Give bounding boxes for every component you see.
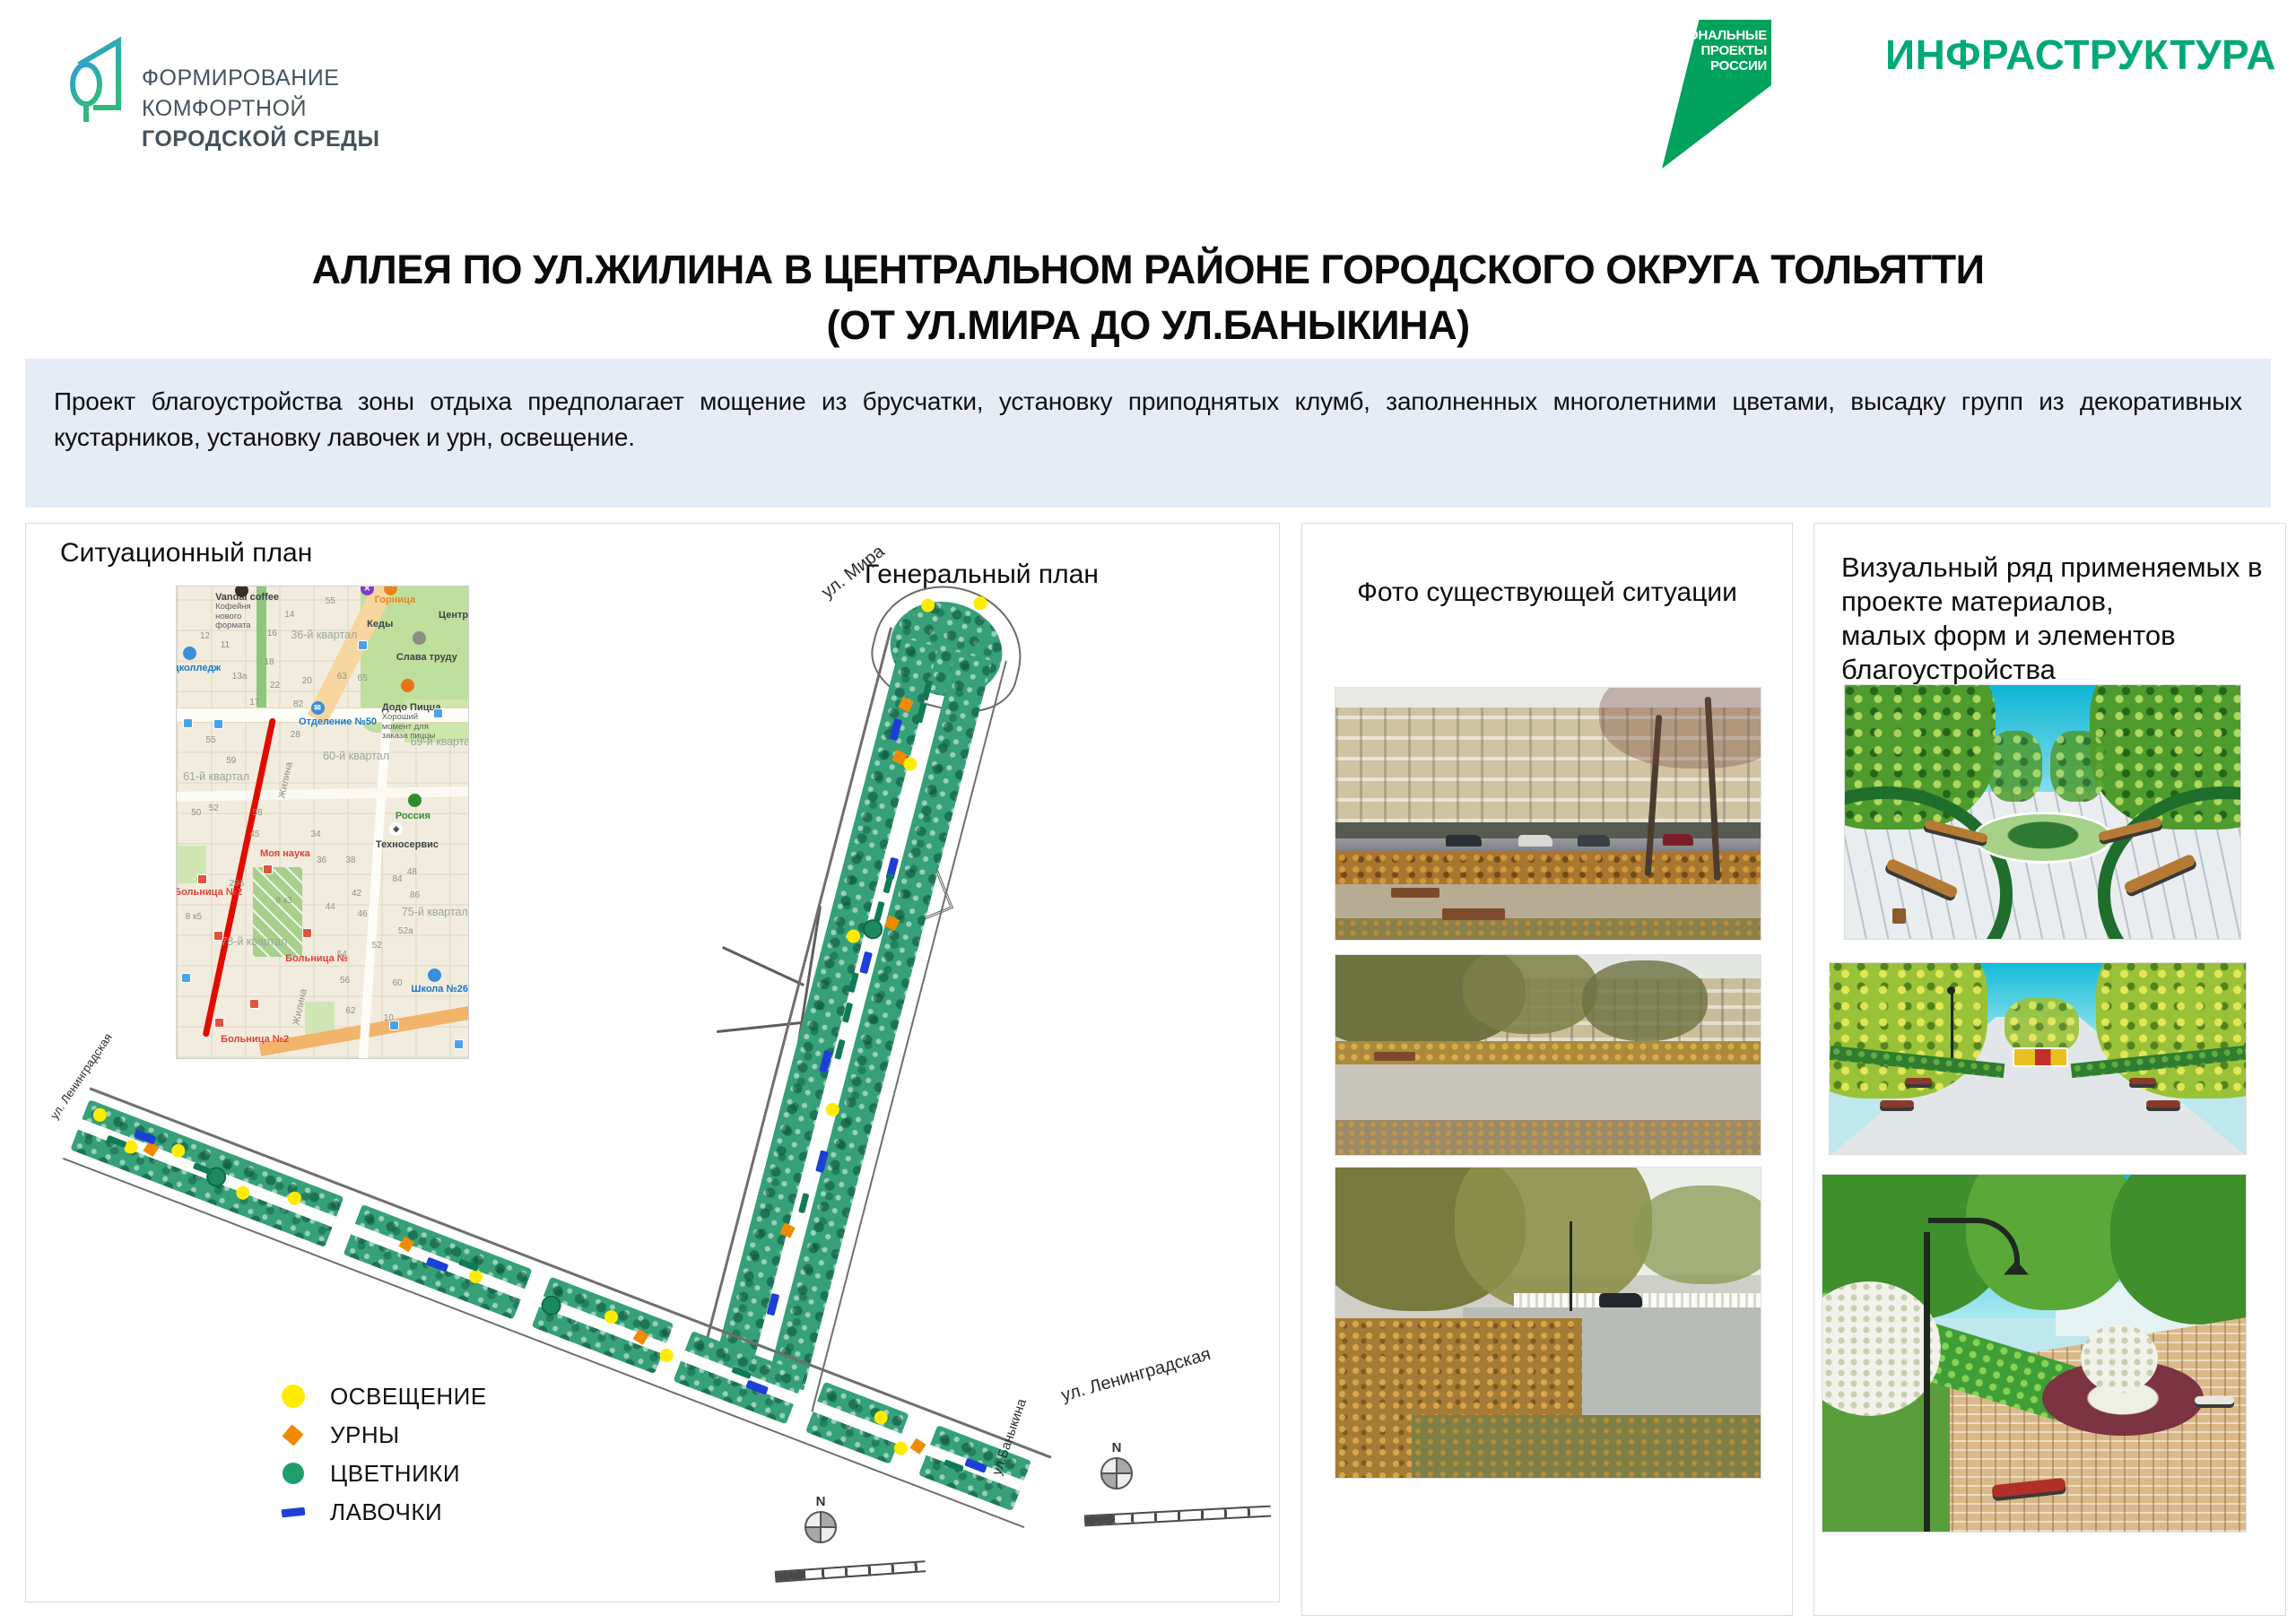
fkgs-logo: ФОРМИРОВАНИЕ КОМФОРТНОЙ ГОРОДСКОЙ СРЕДЫ [66,32,425,167]
project-render-3 [1822,1174,2247,1533]
legend-item: ОСВЕЩЕНИЕ [282,1383,487,1410]
photos-title: Фото существующей ситуации [1302,578,1792,608]
lighting-marker [761,1366,778,1382]
page-title: АЛЛЕЯ ПО УЛ.ЖИЛИНА В ЦЕНТРАЛЬНОМ РАЙОНЕ … [0,242,2296,353]
map-house-number: 55 [326,596,335,606]
map-poi-label: Централ [439,610,469,621]
bench-marker [886,857,900,880]
map-house-number: 45 [249,829,259,839]
planter-marker [916,702,926,723]
planter-marker [798,1194,809,1214]
renders-panel: Визуальный ряд применяемых в проекте мат… [1813,523,2286,1616]
render-bench [2195,1396,2234,1404]
plan-road-sketch [717,1021,802,1033]
bench-legend-icon [282,1507,306,1517]
alley-greenery [344,1204,533,1320]
render-bench [2146,1100,2180,1107]
poi-marker-icon [214,1018,224,1028]
map-poi-label: 60-й квартал [323,751,389,761]
photo-grass [1412,1415,1761,1479]
alley-greenery [673,1331,805,1424]
compass-rose-icon [1100,1457,1133,1489]
existing-situation-photo-1 [1335,687,1761,941]
car [1518,835,1552,847]
lighting-marker [170,1142,187,1159]
alley-greenery [768,652,993,1391]
dodo-pizza-icon [401,679,414,692]
planter-marker [834,1039,845,1060]
car [1663,834,1693,846]
render-flowerbed [2013,1047,2068,1067]
car [1446,835,1482,847]
fkgs-line: КОМФОРТНОЙ [142,93,379,124]
map-poi-label: 61-й квартал [183,771,249,782]
map-house-number: 16 [267,629,277,638]
map-house-number: 62 [346,1006,356,1016]
urn-marker [898,697,913,712]
map-poi-label: 69-й квартал [411,736,469,747]
photo-bench [1442,908,1505,920]
cul-de-sac-outline [861,570,1036,725]
general-plan-title: Генеральный план [865,560,1099,590]
render-urn [1892,908,1906,924]
legend-item: ЛАВОЧКИ [282,1498,487,1525]
map-house-number: 58 [253,808,263,818]
lamp-head [1947,986,1955,994]
transit-stop-icon [389,1020,399,1030]
bench-marker [859,951,873,974]
scale-bar [1084,1506,1271,1527]
photo-pavement [1335,1064,1761,1120]
photo-grass [1335,918,1761,941]
compass-rose-icon [804,1511,837,1543]
road-edge-line [63,1157,1024,1528]
street-label: ул.Баныкина [989,1397,1030,1478]
map-house-number: 38 [346,855,356,865]
car [1578,835,1610,847]
map-house-number: 52 [372,941,382,951]
photos-panel: Фото существующей ситуации [1301,523,1793,1616]
situational-map: Vandal coffeeКофейня нового форматаГорни… [176,586,469,1059]
map-poi-label: 75-й квартал [402,907,468,917]
map-poi-label: Больница №2 [221,1034,289,1045]
render-flowerbed [1973,812,2113,864]
map-house-number: 42 [352,889,361,899]
map-house-number: 55 [206,735,216,745]
map-poi-label: 36-й квартал [291,630,357,640]
map-house-number: 18 [265,657,274,667]
map-house-number: 60 [393,978,403,988]
urn-marker [143,1141,160,1157]
compass: N [1099,1440,1135,1489]
project-render-1 [1844,684,2241,940]
urn-legend-icon [283,1424,304,1446]
plan-building-outline [846,843,953,941]
planter-marker [106,1135,126,1148]
planter-marker [944,1459,964,1472]
flowerbed-marker [204,1164,229,1189]
map-house-number: 48 [407,867,417,877]
render-bench [1905,1078,1932,1084]
flowerbed-marker [861,917,885,942]
planter-marker [842,1003,853,1023]
map-poi-label: Додо ПиццаХороший момент для заказа пицц… [382,702,441,713]
map-house-number: 11 [221,640,230,650]
lighting-marker [972,595,988,612]
light-pole [1570,1221,1572,1311]
planter-marker [883,873,894,893]
transit-stop-icon [433,708,443,718]
map-poi-label: Моя наука [260,848,310,859]
map-poi-label: Техносервис [376,839,439,850]
page-title-line1: АЛЛЕЯ ПО УЛ.ЖИЛИНА В ЦЕНТРАЛЬНОМ РАЙОНЕ … [0,242,2296,298]
college-icon [183,647,196,660]
alley-greenery [532,1277,674,1374]
national-projects-text: НАЦИОНАЛЬНЫЕ ПРОЕКТЫ РОССИИ [1650,28,1767,74]
map-house-number: 50 [191,808,201,818]
map-house-number: 14 [284,610,294,620]
lighting-marker [658,1347,675,1364]
render-trees [2050,731,2106,802]
tree-canopy [1463,954,1597,1034]
map-poi-label: Слава труду [396,652,457,663]
planter-marker [848,972,858,993]
map-poi-label: дколледж [176,663,221,673]
road-edge-line [811,661,1007,1412]
flowerbed-marker [538,1292,563,1317]
transit-stop-icon [213,719,223,729]
national-projects-flag-icon: НАЦИОНАЛЬНЫЕ ПРОЕКТЫ РОССИИ [1662,20,1771,169]
map-poi-label: Кеды [367,619,393,630]
urn-marker [779,1222,795,1238]
render-flowering-shrub [2081,1324,2158,1393]
map-house-number: 65 [358,673,368,683]
bench-marker [134,1129,157,1144]
transit-stop-icon [358,640,368,650]
photo-bench [1374,1052,1415,1061]
bench-marker [425,1257,448,1272]
planter-marker [874,901,884,922]
render-bench [1880,1100,1914,1107]
map-poi-label: Отделение №50 [299,716,377,727]
poi-marker-icon [213,931,223,941]
poi-marker-icon [263,864,273,874]
plan-road-sketch [787,906,822,1110]
map-house-number: 13а [232,672,248,682]
map-house-number: 296 [230,879,245,889]
lighting-marker [122,1138,139,1155]
street-label: ул. Ленинградская [1059,1344,1213,1407]
scale-bar [775,1560,926,1583]
program-label: ИНФРАСТРУКТУРА [1885,30,2276,79]
urn-marker [892,750,908,765]
bench-marker [964,1458,987,1473]
lighting-marker [892,1439,909,1456]
planter-marker [193,1162,213,1175]
urn-marker [884,915,900,930]
urn-marker [399,1236,415,1252]
legend-item: УРНЫ [282,1421,487,1448]
fkgs-logo-text: ФОРМИРОВАНИЕ КОМФОРТНОЙ ГОРОДСКОЙ СРЕДЫ [142,63,379,154]
lighting-marker [872,1409,889,1426]
alley-greenery [918,1425,1031,1511]
transit-stop-icon [183,718,193,728]
map-house-number: 20 [302,676,312,686]
map-house-number: 52 [209,803,219,813]
map-house-number: 59 [226,756,236,766]
lighting-marker [919,597,935,613]
lighting-marker [286,1190,303,1207]
lighting-legend-icon [282,1385,305,1408]
map-poi-label: Россия [396,811,430,821]
shop-icon [408,794,422,807]
map-house-number: 63 [337,672,347,682]
lighting-marker [824,1101,840,1117]
map-house-number: 44 [326,902,335,912]
plan-road-sketch [806,901,842,1110]
existing-situation-photo-3 [1335,1167,1761,1479]
lighting-marker [91,1107,109,1124]
legend-label: ОСВЕЩЕНИЕ [330,1383,487,1411]
fkgs-logo-icon [66,34,124,126]
map-house-number: 17 [249,698,259,708]
map-house-number: 36 [317,855,326,865]
transit-stop-icon [181,973,191,983]
project-description: Проект благоустройства зоны отдыха предп… [54,384,2242,456]
bench-marker [766,1293,779,1316]
situational-plan-title: Ситуационный план [60,538,312,569]
street-label: ул. Ленинградская [48,1031,115,1122]
compass: N [803,1494,839,1543]
road-edge-line [90,1087,1051,1458]
alley-greenery [713,638,938,1376]
map-road [176,786,469,801]
map-house-number: 56 [340,976,350,986]
map-house-number: 8 к3 [276,896,292,906]
project-render-2 [1829,962,2247,1155]
tech-icon: ◈ [389,822,403,836]
page-title-line2: (ОТ УЛ.МИРА ДО УЛ.БАНЫКИНА) [0,298,2296,353]
transit-stop-icon [454,1039,464,1049]
road-edge-line [696,627,892,1378]
planter-marker [921,681,932,701]
map-house-number: 22 [270,681,280,690]
bench-marker [815,1151,829,1173]
lighting-marker [234,1184,251,1201]
plan-road-sketch [722,946,804,986]
map-house-number: 46 [358,909,368,919]
map-house-number: 8 к5 [186,912,202,922]
lamp-post [1924,1232,1930,1532]
lighting-marker [466,1268,483,1285]
lamp-post [1951,990,1953,1058]
photo-hedge [1335,852,1761,884]
bench-marker [889,718,902,741]
car [1599,1293,1642,1307]
map-house-number: 82 [293,699,303,709]
school-icon [428,968,441,982]
poi-marker-icon [302,928,312,938]
fkgs-line: ФОРМИРОВАНИЕ [142,63,379,93]
alley-greenery [70,1099,344,1247]
renders-title: Визуальный ряд применяемых в проекте мат… [1841,551,2263,687]
tree-canopy [1455,1167,1652,1311]
lighting-marker [901,756,918,772]
render-bench [2129,1078,2156,1084]
poi-marker-icon [197,874,207,884]
flowerbed-legend-icon [283,1463,304,1484]
plans-panel: Ситуационный план Vandal coffeeКофейня н… [25,523,1280,1602]
map-house-number: 86 [410,890,420,900]
mail-icon: ✉ [311,701,325,715]
tree-canopy [1633,1185,1761,1284]
map-poi-label: 78-й квартал [221,936,287,947]
legend-label: ЛАВОЧКИ [330,1498,442,1526]
planter-marker [458,1259,479,1272]
photo-bench [1391,888,1439,898]
map-house-number: 12 [200,631,210,641]
existing-situation-photo-2 [1335,954,1761,1156]
poi-marker-icon [249,999,259,1009]
urn-marker [633,1329,649,1345]
bench-marker [820,1050,833,1073]
map-house-number: 84 [393,874,403,884]
alley-segment-zhilina-north [713,638,992,1390]
compass-north-label: N [803,1494,839,1509]
legend-label: УРНЫ [330,1421,400,1449]
planter-marker [731,1366,752,1378]
lighting-marker [846,928,862,944]
tree-canopy [1582,960,1708,1041]
render-trees [1987,731,2043,802]
legend-label: ЦВЕТНИКИ [330,1460,460,1488]
render-trees [2005,997,2080,1055]
bench-marker [745,1380,769,1395]
plan-legend: ОСВЕЩЕНИЕУРНЫЦВЕТНИКИЛАВОЧКИ [282,1383,487,1537]
alley-greenery [880,590,1013,708]
map-house-number: 28 [291,730,300,740]
map-house-number: 54 [337,950,347,960]
map-poi-label: Горница [375,595,416,605]
alley-greenery [804,1381,909,1463]
legend-item: ЦВЕТНИКИ [282,1460,487,1487]
map-house-number: 52а [398,926,413,936]
urn-marker [910,1438,926,1455]
compass-north-label: N [1099,1440,1135,1455]
lighting-marker [603,1308,620,1325]
map-poi-label: Школа №26 [411,984,468,994]
fkgs-line: ГОРОДСКОЙ СРЕДЫ [142,124,379,154]
map-house-number: 34 [311,829,321,839]
photo-ground [1335,1120,1761,1156]
project-description-box: Проект благоустройства зоны отдыха предп… [25,359,2271,508]
alley-segment-zhilina-south [70,1099,1031,1511]
